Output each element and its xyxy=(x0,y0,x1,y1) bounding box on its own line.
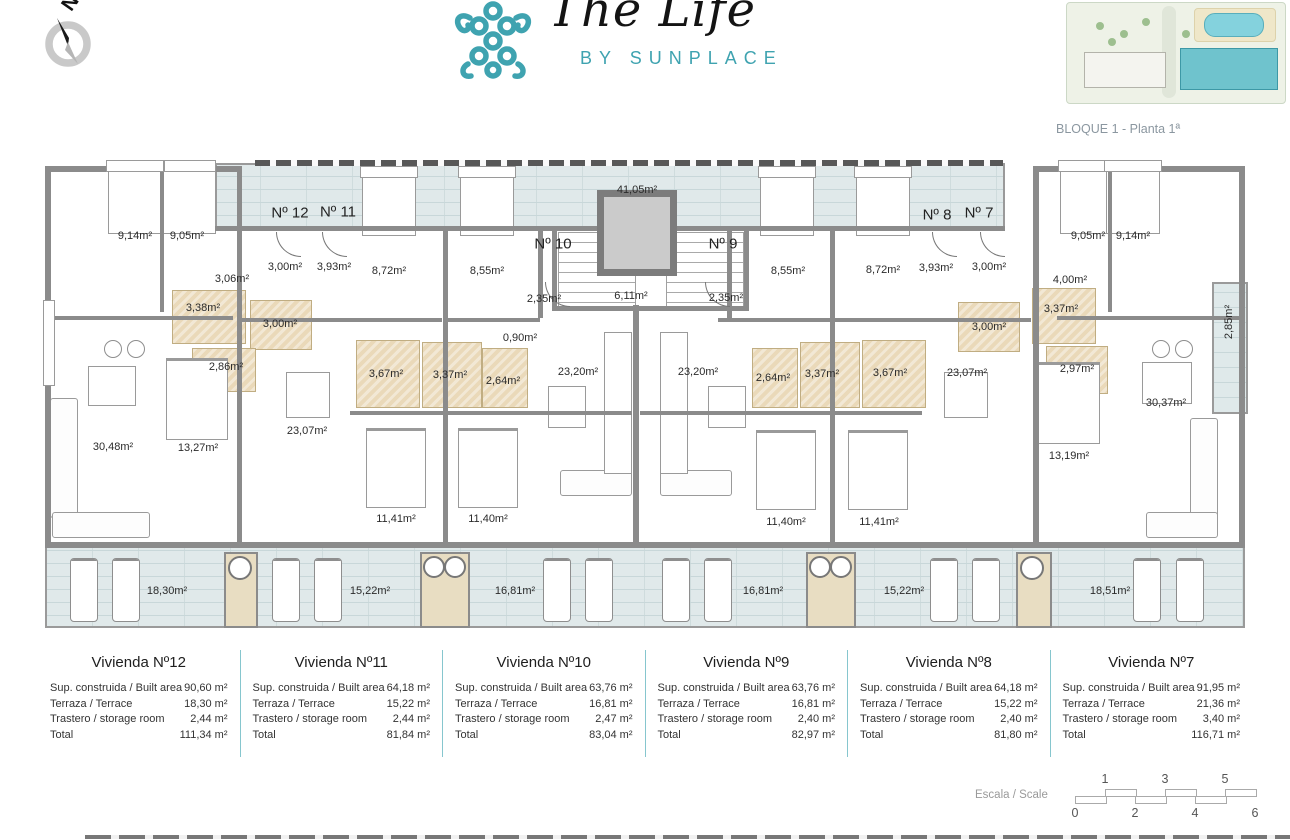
spec-value: 63,76 m² xyxy=(792,681,835,697)
room-area-label: 2,64m² xyxy=(756,372,790,384)
lounger xyxy=(272,558,300,622)
unit-number-label: Nº 10 xyxy=(534,236,571,253)
room-area-label: 3,93m² xyxy=(317,261,351,273)
wall xyxy=(552,306,749,311)
spec-label: Terraza / Terrace xyxy=(1063,697,1145,713)
scale-step xyxy=(1225,789,1257,797)
door-swing xyxy=(276,232,301,257)
scale-tick: 1 xyxy=(1102,772,1109,786)
lounger xyxy=(704,558,732,622)
unit-title: Vivienda Nº12 xyxy=(50,654,228,671)
spec-label: Terraza / Terrace xyxy=(253,697,335,713)
window xyxy=(106,160,164,172)
wall xyxy=(45,542,1245,548)
room-area-label: 3,38m² xyxy=(186,302,220,314)
spec-row: Total81,80 m² xyxy=(860,728,1038,744)
bed xyxy=(1106,168,1160,234)
bed xyxy=(366,428,426,508)
room-area-label: 8,55m² xyxy=(771,265,805,277)
room-area-label: 0,90m² xyxy=(503,332,537,344)
unit-title: Vivienda Nº7 xyxy=(1063,654,1241,671)
spec-value: 111,34 m² xyxy=(180,728,228,744)
wall xyxy=(448,318,540,322)
room-area-label: 3,06m² xyxy=(215,273,249,285)
spec-row: Sup. construida / Built area90,60 m² xyxy=(50,681,228,697)
spec-row: Sup. construida / Built area64,18 m² xyxy=(860,681,1038,697)
bed xyxy=(162,168,216,234)
scale-step xyxy=(1195,796,1227,804)
spec-row: Sup. construida / Built area63,76 m² xyxy=(455,681,633,697)
terrace-area-label: 18,30m² xyxy=(147,585,187,597)
window xyxy=(854,166,912,178)
room-area-label: 6,11m² xyxy=(614,290,647,302)
window xyxy=(1058,160,1110,172)
window xyxy=(458,166,516,178)
spec-value: 2,40 m² xyxy=(1000,712,1037,728)
spec-row: Trastero / storage room2,44 m² xyxy=(50,712,228,728)
spec-label: Sup. construida / Built area xyxy=(455,681,587,697)
bed xyxy=(108,168,162,234)
door-swing xyxy=(932,232,957,257)
door-swing xyxy=(980,232,1005,257)
spec-label: Trastero / storage room xyxy=(860,712,975,728)
scale-tick: 6 xyxy=(1252,806,1259,820)
spec-row: Sup. construida / Built area63,76 m² xyxy=(658,681,836,697)
room-area-label: 23,20m² xyxy=(558,366,598,378)
spec-row: Sup. construida / Built area91,95 m² xyxy=(1063,681,1241,697)
spec-label: Total xyxy=(658,728,681,744)
lounger xyxy=(314,558,342,622)
room-area-label: 2,35m² xyxy=(709,292,743,304)
stool xyxy=(1152,340,1170,358)
spec-label: Terraza / Terrace xyxy=(860,697,942,713)
dining-table xyxy=(88,366,136,406)
unit-title: Vivienda Nº9 xyxy=(658,654,836,671)
lounger xyxy=(972,558,1000,622)
wall xyxy=(718,318,830,322)
room-area-label: 11,41m² xyxy=(376,513,416,525)
room-area-label: 23,07m² xyxy=(947,367,987,379)
room-area-label: 2,97m² xyxy=(1060,363,1094,375)
spec-row: Total81,84 m² xyxy=(253,728,431,744)
unit-spec-column: Vivienda Nº11Sup. construida / Built are… xyxy=(241,650,444,757)
scale-tick: 4 xyxy=(1192,806,1199,820)
dining-table xyxy=(286,372,330,418)
sofa xyxy=(1146,512,1218,538)
terrace-area-label: 15,22m² xyxy=(350,585,390,597)
scale-tick: 3 xyxy=(1162,772,1169,786)
lounger xyxy=(1133,558,1161,622)
unit-spec-column: Vivienda Nº8Sup. construida / Built area… xyxy=(848,650,1051,757)
room-area-label: 9,14m² xyxy=(1116,230,1150,242)
spec-label: Trastero / storage room xyxy=(1063,712,1178,728)
room-area-label: 23,20m² xyxy=(678,366,718,378)
spec-value: 15,22 m² xyxy=(387,697,430,713)
wall-thin xyxy=(1243,548,1245,628)
elevator xyxy=(597,190,677,276)
washer-icon xyxy=(228,556,252,580)
spec-row: Terraza / Terrace16,81 m² xyxy=(455,697,633,713)
wall-thin xyxy=(45,548,47,628)
unit-spec-column: Vivienda Nº12Sup. construida / Built are… xyxy=(38,650,241,757)
sofa xyxy=(50,398,78,518)
spec-row: Trastero / storage room2,44 m² xyxy=(253,712,431,728)
kitchen-counter xyxy=(660,332,688,474)
room-area-label: 3,93m² xyxy=(919,262,953,274)
room-area-label: 3,00m² xyxy=(972,321,1006,333)
lounger xyxy=(543,558,571,622)
spec-label: Total xyxy=(50,728,73,744)
spec-value: 15,22 m² xyxy=(994,697,1037,713)
scale-step xyxy=(1105,789,1137,797)
room-area-label: 8,72m² xyxy=(372,265,406,277)
spec-value: 90,60 m² xyxy=(184,681,227,697)
wall xyxy=(160,166,164,312)
room-area-label: 2,35m² xyxy=(527,293,561,305)
scale-tick: 5 xyxy=(1222,772,1229,786)
wall xyxy=(633,305,639,548)
spec-label: Total xyxy=(860,728,883,744)
spec-value: 2,40 m² xyxy=(798,712,835,728)
stool xyxy=(104,340,122,358)
spec-label: Terraza / Terrace xyxy=(455,697,537,713)
dining-table xyxy=(548,386,586,428)
bed xyxy=(458,428,518,508)
room-area-label: 3,67m² xyxy=(873,367,907,379)
spec-label: Sup. construida / Built area xyxy=(50,681,182,697)
spec-row: Trastero / storage room2,47 m² xyxy=(455,712,633,728)
bed xyxy=(848,430,908,510)
spec-label: Sup. construida / Built area xyxy=(860,681,992,697)
stool xyxy=(127,340,145,358)
spec-label: Total xyxy=(455,728,478,744)
wall xyxy=(350,411,632,415)
spec-value: 3,40 m² xyxy=(1203,712,1240,728)
spec-row: Terraza / Terrace18,30 m² xyxy=(50,697,228,713)
lounger xyxy=(585,558,613,622)
spec-label: Trastero / storage room xyxy=(253,712,368,728)
wall xyxy=(1033,166,1039,548)
spec-label: Terraza / Terrace xyxy=(658,697,740,713)
spec-value: 81,84 m² xyxy=(387,728,430,744)
room-area-label: 11,40m² xyxy=(766,516,806,528)
wall xyxy=(1239,166,1245,548)
room-area-label: 9,05m² xyxy=(1071,230,1105,242)
room-area-label: 3,00m² xyxy=(268,261,302,273)
wall xyxy=(1057,316,1245,320)
room-area-label: 3,00m² xyxy=(972,261,1006,273)
room-area-label: 8,55m² xyxy=(470,265,504,277)
room-area-label: 30,48m² xyxy=(93,441,133,453)
room-area-label: 3,37m² xyxy=(1044,303,1078,315)
spec-row: Terraza / Terrace15,22 m² xyxy=(253,697,431,713)
wall xyxy=(45,316,233,320)
spec-label: Sup. construida / Built area xyxy=(658,681,790,697)
room-area-label: 3,37m² xyxy=(805,368,839,380)
scale-bar: Escala / Scale 1350246 xyxy=(975,772,1275,824)
room-area-label: 3,00m² xyxy=(263,318,297,330)
room-area-label: 2,86m² xyxy=(209,361,243,373)
unit-number-label: Nº 12 xyxy=(271,205,308,222)
unit-title: Vivienda Nº10 xyxy=(455,654,633,671)
stool xyxy=(1175,340,1193,358)
spec-row: Sup. construida / Built area64,18 m² xyxy=(253,681,431,697)
spec-label: Sup. construida / Built area xyxy=(1063,681,1195,697)
spec-row: Total82,97 m² xyxy=(658,728,836,744)
lounger xyxy=(70,558,98,622)
room-area-label: 11,40m² xyxy=(468,513,508,525)
unit-number-label: Nº 7 xyxy=(965,205,994,222)
wall xyxy=(830,226,835,548)
wall xyxy=(237,166,242,548)
spec-row: Terraza / Terrace16,81 m² xyxy=(658,697,836,713)
spec-value: 18,30 m² xyxy=(184,697,227,713)
spec-row: Total116,71 m² xyxy=(1063,728,1241,744)
spec-value: 16,81 m² xyxy=(792,697,835,713)
unit-title: Vivienda Nº11 xyxy=(253,654,431,671)
room-area-label: 41,05m² xyxy=(617,184,657,196)
room-area-label: 9,14m² xyxy=(118,230,152,242)
spec-value: 64,18 m² xyxy=(994,681,1037,697)
kitchen-counter xyxy=(604,332,632,474)
room-area-label: 3,67m² xyxy=(369,368,403,380)
room-area-label: 8,72m² xyxy=(866,264,900,276)
spec-row: Trastero / storage room3,40 m² xyxy=(1063,712,1241,728)
spec-value: 81,80 m² xyxy=(994,728,1037,744)
unit-spec-column: Vivienda Nº9Sup. construida / Built area… xyxy=(646,650,849,757)
unit-number-label: Nº 8 xyxy=(923,207,952,224)
spec-label: Terraza / Terrace xyxy=(50,697,132,713)
lounger xyxy=(930,558,958,622)
wall xyxy=(744,230,749,310)
spec-value: 83,04 m² xyxy=(589,728,632,744)
bed xyxy=(756,430,816,510)
washer-icon xyxy=(830,556,852,578)
scale-label: Escala / Scale xyxy=(975,789,1048,801)
spec-value: 82,97 m² xyxy=(792,728,835,744)
room-area-label: 13,19m² xyxy=(1049,450,1089,462)
washer-icon xyxy=(1020,556,1044,580)
door-swing xyxy=(322,232,347,257)
room-area-label: 23,07m² xyxy=(287,425,327,437)
spec-row: Total111,34 m² xyxy=(50,728,228,744)
spec-row: Trastero / storage room2,40 m² xyxy=(658,712,836,728)
spec-value: 64,18 m² xyxy=(387,681,430,697)
room-area-label: 30,37m² xyxy=(1146,397,1186,409)
spec-value: 16,81 m² xyxy=(589,697,632,713)
scale-step xyxy=(1075,796,1107,804)
scale-steps: 1350246 xyxy=(1075,772,1265,824)
spec-value: 116,71 m² xyxy=(1191,728,1240,744)
window xyxy=(43,300,55,386)
window xyxy=(360,166,418,178)
page-bottom-edge xyxy=(85,835,1290,839)
washer-icon xyxy=(809,556,831,578)
washer-icon xyxy=(444,556,466,578)
terrace-area-label: 18,51m² xyxy=(1090,585,1130,597)
unit-title: Vivienda Nº8 xyxy=(860,654,1038,671)
unit-number-label: Nº 11 xyxy=(320,204,356,221)
scale-step xyxy=(1135,796,1167,804)
spec-label: Total xyxy=(253,728,276,744)
terrace-area-label: 16,81m² xyxy=(495,585,535,597)
spec-label: Total xyxy=(1063,728,1086,744)
wall xyxy=(443,226,448,548)
spec-value: 91,95 m² xyxy=(1197,681,1240,697)
dining-table xyxy=(708,386,746,428)
room-area-label: 13,27m² xyxy=(178,442,218,454)
terrace-area-label: 16,81m² xyxy=(743,585,783,597)
spec-label: Trastero / storage room xyxy=(455,712,570,728)
spec-label: Trastero / storage room xyxy=(50,712,165,728)
room-area-label: 3,37m² xyxy=(433,369,467,381)
room-area-label: 4,00m² xyxy=(1053,274,1087,286)
lounger xyxy=(662,558,690,622)
sofa xyxy=(52,512,150,538)
window xyxy=(164,160,216,172)
spec-value: 21,36 m² xyxy=(1197,697,1240,713)
spec-label: Trastero / storage room xyxy=(658,712,773,728)
spec-tables: Vivienda Nº12Sup. construida / Built are… xyxy=(38,650,1252,757)
spec-value: 2,44 m² xyxy=(190,712,227,728)
wall-thin xyxy=(1003,164,1005,226)
wall xyxy=(1108,166,1112,312)
scale-tick: 0 xyxy=(1072,806,1079,820)
room-area-label: 2,64m² xyxy=(486,375,520,387)
terrace-area-label: 15,22m² xyxy=(884,585,924,597)
spec-row: Terraza / Terrace21,36 m² xyxy=(1063,697,1241,713)
lounger xyxy=(1176,558,1204,622)
window xyxy=(1104,160,1162,172)
spec-row: Terraza / Terrace15,22 m² xyxy=(860,697,1038,713)
scale-tick: 2 xyxy=(1132,806,1139,820)
unit-spec-column: Vivienda Nº10Sup. construida / Built are… xyxy=(443,650,646,757)
spec-value: 63,76 m² xyxy=(589,681,632,697)
lounger xyxy=(112,558,140,622)
unit-number-label: Nº 9 xyxy=(709,236,738,253)
spec-row: Total83,04 m² xyxy=(455,728,633,744)
room-area-label: 9,05m² xyxy=(170,230,204,242)
spec-value: 2,47 m² xyxy=(595,712,632,728)
window xyxy=(758,166,816,178)
wall xyxy=(640,411,922,415)
room-area-label: 2,85m² xyxy=(1223,305,1235,339)
unit-spec-column: Vivienda Nº7Sup. construida / Built area… xyxy=(1051,650,1253,757)
spec-label: Sup. construida / Built area xyxy=(253,681,385,697)
room-area-label: 11,41m² xyxy=(859,516,899,528)
spec-value: 2,44 m² xyxy=(393,712,430,728)
washer-icon xyxy=(423,556,445,578)
scale-step xyxy=(1165,789,1197,797)
spec-row: Trastero / storage room2,40 m² xyxy=(860,712,1038,728)
